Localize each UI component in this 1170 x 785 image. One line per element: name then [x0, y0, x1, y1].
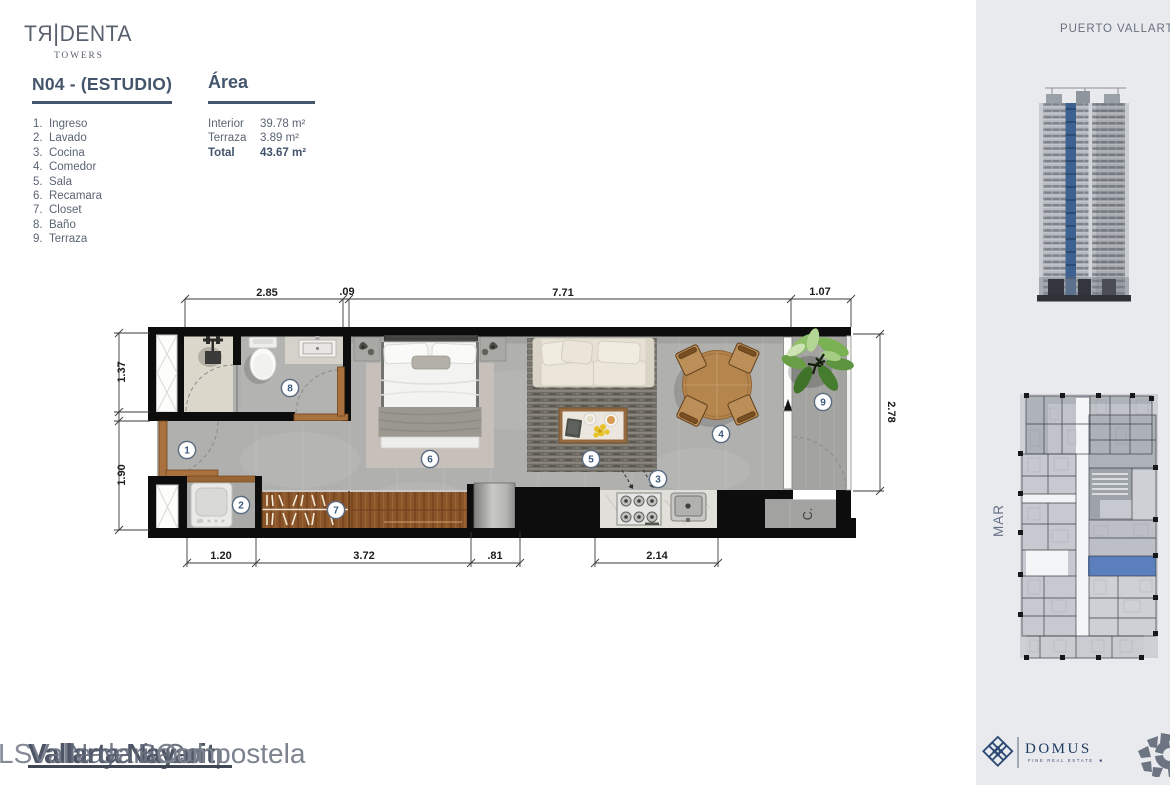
svg-text:8: 8 [287, 384, 293, 395]
svg-text:2.78: 2.78 [885, 401, 897, 422]
svg-text:2: 2 [238, 501, 244, 512]
svg-text:.09: .09 [339, 286, 354, 298]
svg-text:1: 1 [184, 446, 190, 457]
svg-text:C.: C. [801, 508, 815, 521]
svg-text:2.14: 2.14 [646, 550, 668, 562]
svg-text:6: 6 [427, 455, 433, 466]
svg-text:1.07: 1.07 [809, 286, 830, 298]
svg-text:1.37: 1.37 [116, 361, 128, 382]
svg-text:FINE REAL ESTATE ■: FINE REAL ESTATE ■ [1028, 758, 1102, 763]
svg-text:7.71: 7.71 [552, 287, 573, 299]
svg-text:DOMUS: DOMUS [1025, 741, 1092, 757]
svg-text:5: 5 [588, 455, 594, 466]
svg-text:1.90: 1.90 [116, 464, 128, 485]
svg-text:1.20: 1.20 [210, 550, 231, 562]
svg-text:3.72: 3.72 [353, 550, 374, 562]
svg-text:9: 9 [820, 398, 826, 409]
svg-text:3: 3 [655, 475, 661, 486]
svg-text:2.85: 2.85 [256, 287, 277, 299]
svg-text:4: 4 [718, 430, 724, 441]
svg-text:.81: .81 [487, 550, 502, 562]
svg-text:7: 7 [333, 506, 339, 517]
